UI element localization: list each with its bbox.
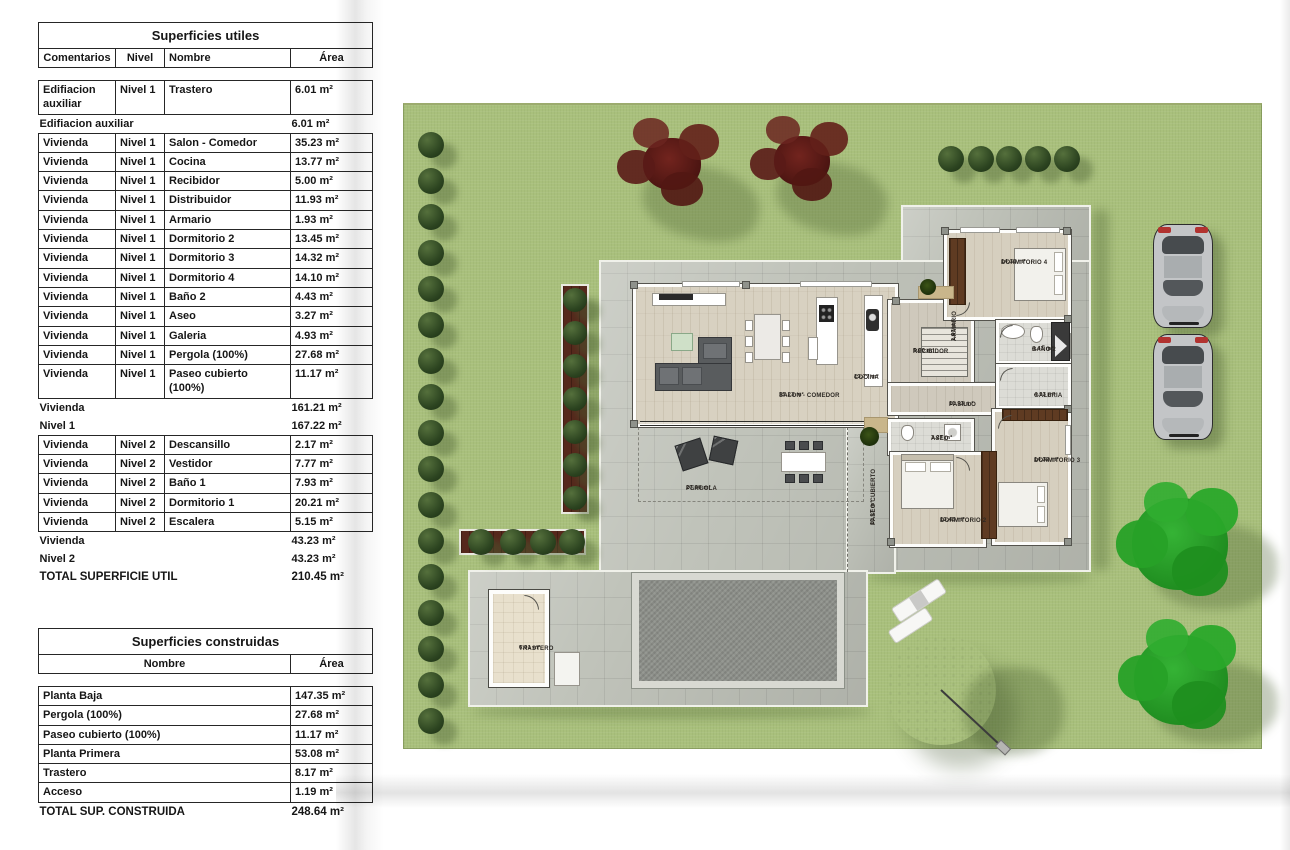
column-header: Área <box>291 49 373 68</box>
room-area: 27.68 m² <box>686 485 711 493</box>
wall-post <box>892 297 900 305</box>
stove-hob-icon <box>819 305 834 322</box>
table-summary-row: Nivel 243.23 m² <box>39 550 373 568</box>
room-area: 13.77 m² <box>854 374 879 382</box>
tv-icon <box>659 294 693 300</box>
page-edge-shadow <box>1280 0 1290 850</box>
bush-icon <box>1025 146 1051 172</box>
sofa-cushion <box>659 367 679 385</box>
table-row: ViviendaNivel 1Armario1.93 m² <box>39 210 373 229</box>
bush-icon <box>1054 146 1080 172</box>
dining-chair-icon <box>745 336 753 347</box>
bush-icon <box>418 528 444 554</box>
green-tree-icon <box>1114 480 1246 608</box>
column-header: Comentarios <box>39 49 116 68</box>
window-icon <box>800 281 872 287</box>
dining-chair-icon <box>782 320 790 331</box>
outdoor-chair-icon <box>813 474 823 483</box>
kitchen-sink-icon <box>866 309 879 331</box>
superficies-utiles-table: Superficies utilesComentariosNivelNombre… <box>38 22 372 586</box>
bush-icon <box>530 529 556 555</box>
sliding-glass-door <box>640 421 864 426</box>
room-area: 11.17 m² <box>870 501 878 525</box>
house-shadow <box>1092 209 1109 571</box>
bush-icon <box>418 564 444 590</box>
table-row: ViviendaNivel 1Dormitorio 213.45 m² <box>39 230 373 249</box>
car-icon <box>1153 334 1213 440</box>
bed-pillow <box>1054 275 1063 295</box>
table-title: Superficies construidas <box>39 629 373 655</box>
bush-icon <box>418 456 444 482</box>
page-fold-shadow-horizontal <box>336 774 1290 808</box>
dining-chair-icon <box>782 336 790 347</box>
room-area: 35.23 m² <box>779 392 804 400</box>
dining-table <box>754 314 781 360</box>
table-summary-row: Nivel 1167.22 m² <box>39 417 373 436</box>
toilet-icon <box>901 425 914 441</box>
bush-icon <box>559 529 585 555</box>
wall-post <box>630 281 638 289</box>
bush-icon <box>418 708 444 734</box>
room-area: 11.93 m² <box>949 401 973 409</box>
plant-icon <box>920 279 936 295</box>
table-row: ViviendaNivel 1Galeria4.93 m² <box>39 326 373 345</box>
dining-chair-icon <box>745 320 753 331</box>
column-header: Área <box>291 655 373 674</box>
column-header: Nivel <box>116 49 165 68</box>
outdoor-chair-icon <box>785 441 795 450</box>
window-icon <box>1065 425 1071 455</box>
bush-icon <box>418 672 444 698</box>
trastero-building <box>489 590 549 687</box>
pergola-lounge-chair-icon <box>709 436 739 466</box>
bush-icon <box>563 486 587 510</box>
table-row: ViviendaNivel 2Descansillo2.17 m² <box>39 435 373 454</box>
wardrobe-icon <box>981 451 997 539</box>
bush-icon <box>468 529 494 555</box>
table-row: ViviendaNivel 1Salon - Comedor35.23 m² <box>39 133 373 152</box>
room-area: 5.00 m² <box>913 348 934 356</box>
superficies-construidas-table: Superficies construidasNombreÁreaPlanta … <box>38 628 372 821</box>
superficies-construidas-grid: Superficies construidasNombreÁreaPlanta … <box>38 628 373 821</box>
table-row: ViviendaNivel 1Dormitorio 314.32 m² <box>39 249 373 268</box>
wall-post <box>1064 538 1072 546</box>
table-row: Pergola (100%)27.68 m² <box>39 706 373 725</box>
wall-post <box>742 281 750 289</box>
bed-headboard <box>901 454 954 461</box>
room-area: 1.93 m² <box>951 320 959 341</box>
table-row: ViviendaNivel 1Paseo cubierto (100%)11.1… <box>39 365 373 399</box>
red-tree-icon <box>609 110 734 225</box>
side-table-plant <box>671 333 693 351</box>
bush-icon <box>563 420 587 444</box>
room-area: 14.10 m² <box>1001 259 1026 267</box>
column-header: Nombre <box>165 49 291 68</box>
column-header: Nombre <box>39 655 291 674</box>
room-area: 4.93 m² <box>1034 392 1055 400</box>
room-area: 3.27 m² <box>931 435 952 443</box>
sofa-cushion <box>703 343 727 359</box>
plant-icon <box>860 427 879 446</box>
table-row: Edifiacion auxiliarNivel 1Trastero6.01 m… <box>39 81 373 115</box>
kitchen-cabinet <box>808 337 818 360</box>
room-area: 13.45 m² <box>940 517 965 525</box>
table-row: Acceso1.19 m² <box>39 783 373 802</box>
bush-icon <box>418 420 444 446</box>
table-row: ViviendaNivel 1Aseo3.27 m² <box>39 307 373 326</box>
shower-tray <box>1055 335 1067 357</box>
table-row: ViviendaNivel 2Dormitorio 120.21 m² <box>39 493 373 512</box>
window-icon <box>1016 227 1060 233</box>
bush-icon <box>418 492 444 518</box>
swimming-pool <box>632 573 844 688</box>
bush-icon <box>418 132 444 158</box>
room-area: 4.43 m² <box>1032 346 1053 354</box>
bush-icon <box>418 276 444 302</box>
outdoor-chair-icon <box>785 474 795 483</box>
wall-post <box>941 227 949 235</box>
bush-icon <box>563 387 587 411</box>
green-tree-icon <box>1116 617 1246 743</box>
wall-post <box>887 538 895 546</box>
paseo-cubierto-boundary <box>847 427 849 572</box>
dining-chair-icon <box>782 352 790 363</box>
bush-icon <box>938 146 964 172</box>
window-icon <box>682 281 740 287</box>
bed-pillow <box>1054 252 1063 272</box>
bush-icon <box>563 453 587 477</box>
bush-icon <box>418 168 444 194</box>
bed-pillow <box>1037 506 1045 523</box>
table-row: Trastero8.17 m² <box>39 764 373 783</box>
site-plan: SALON - COMEDOR35.23 m²COCINA13.77 m²REC… <box>403 103 1262 749</box>
red-tree-icon <box>744 110 862 220</box>
table-summary-row: Edifiacion auxiliar6.01 m² <box>39 114 373 133</box>
superficies-utiles-grid: Superficies utilesComentariosNivelNombre… <box>38 22 373 586</box>
bush-icon <box>563 288 587 312</box>
bush-icon <box>418 204 444 230</box>
bush-icon <box>418 240 444 266</box>
wall-post <box>1063 227 1071 235</box>
table-row: Planta Baja147.35 m² <box>39 687 373 706</box>
table-row: ViviendaNivel 1Dormitorio 414.10 m² <box>39 268 373 287</box>
wall-post <box>630 420 638 428</box>
bush-icon <box>418 348 444 374</box>
bush-icon <box>500 529 526 555</box>
table-row: ViviendaNivel 2Vestidor7.77 m² <box>39 455 373 474</box>
dining-chair-icon <box>745 352 753 363</box>
outdoor-chair-icon <box>799 474 809 483</box>
table-row: ViviendaNivel 2Baño 17.93 m² <box>39 474 373 493</box>
bush-icon <box>968 146 994 172</box>
sofa-cushion <box>682 367 702 385</box>
outdoor-table <box>781 452 826 472</box>
terrace-shadow-mid <box>868 571 1090 583</box>
bush-icon <box>418 312 444 338</box>
table-total-row: TOTAL SUPERFICIE UTIL210.45 m² <box>39 568 373 586</box>
table-row: ViviendaNivel 2Escalera5.15 m² <box>39 512 373 531</box>
toilet-icon <box>1030 326 1043 343</box>
bush-icon <box>563 354 587 378</box>
table-row: ViviendaNivel 1Distribuidor11.93 m² <box>39 191 373 210</box>
table-row: Planta Primera53.08 m² <box>39 744 373 763</box>
outdoor-chair-icon <box>799 441 809 450</box>
table-summary-row: Vivienda43.23 m² <box>39 532 373 551</box>
outdoor-chair-icon <box>813 441 823 450</box>
bush-icon <box>996 146 1022 172</box>
pergola-zone <box>638 427 864 502</box>
room-area: 14.32 m² <box>1034 457 1059 465</box>
bush-icon <box>418 600 444 626</box>
car-icon <box>1153 224 1213 328</box>
table-row: ViviendaNivel 1Baño 24.43 m² <box>39 287 373 306</box>
table-summary-row: Vivienda161.21 m² <box>39 398 373 417</box>
bush-icon <box>418 636 444 662</box>
table-row: ViviendaNivel 1Cocina13.77 m² <box>39 152 373 171</box>
table-row: ViviendaNivel 1Recibidor5.00 m² <box>39 172 373 191</box>
bush-icon <box>563 321 587 345</box>
table-row: ViviendaNivel 1Pergola (100%)27.68 m² <box>39 345 373 364</box>
room-area: 6.01 m² <box>519 645 540 653</box>
bed-pillow <box>1037 486 1045 503</box>
bush-icon <box>418 384 444 410</box>
table-title: Superficies utiles <box>39 23 373 49</box>
room-pasillo <box>888 383 1001 415</box>
bed-pillow <box>905 462 926 472</box>
bed-pillow <box>930 462 951 472</box>
table-row: Paseo cubierto (100%)11.17 m² <box>39 725 373 744</box>
table-total-row: TOTAL SUP. CONSTRUIDA248.64 m² <box>39 802 373 821</box>
acceso-step <box>554 652 580 686</box>
window-icon <box>960 227 1000 233</box>
